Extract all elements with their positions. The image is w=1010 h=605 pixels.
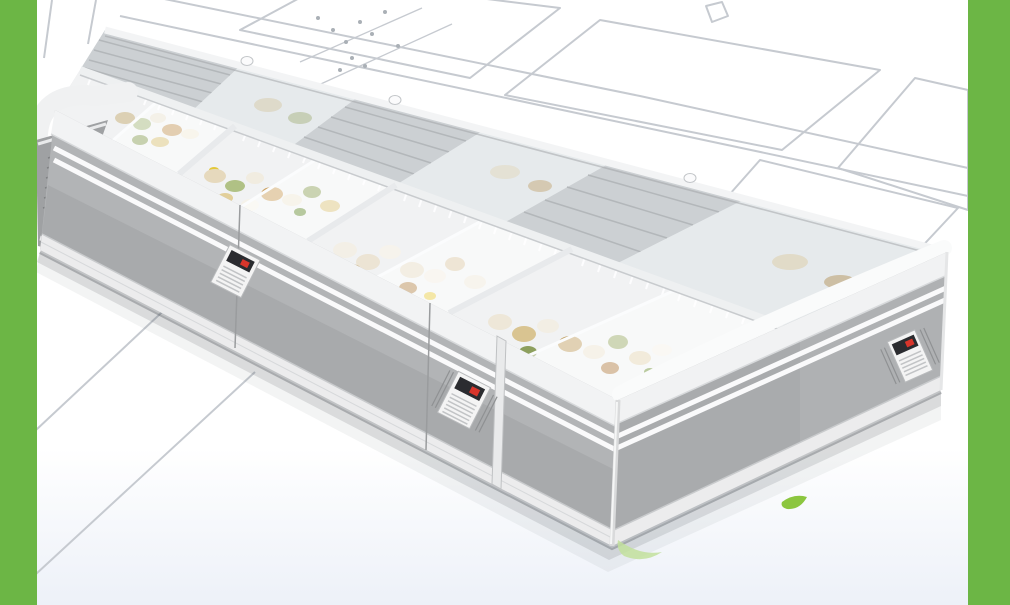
left-accent-bar [0,0,37,605]
wireframe-line [44,0,52,58]
wireframe-dots [316,10,400,72]
wireframe-panel [240,0,560,78]
right-accent-bar [968,0,1010,605]
lid-knob [684,174,696,183]
lid-knob [389,96,401,105]
wireframe-tab [706,2,728,22]
wireframe-panel [505,20,880,150]
freezer-product-illustration [0,0,1010,605]
food-hint [254,98,282,112]
food-hint [490,165,520,179]
product-photo [0,0,1010,605]
lid-knob [241,57,253,66]
wireframe-line [36,372,255,574]
food-hint [528,180,552,192]
food-hint [772,254,808,270]
wireframe-line [88,0,96,44]
food-hint [288,112,312,124]
leaf-icon [782,496,807,509]
